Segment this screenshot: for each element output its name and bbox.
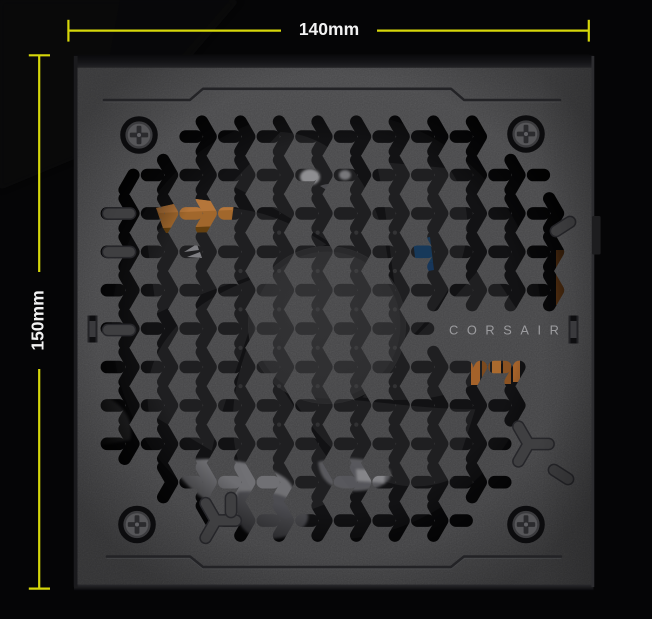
svg-text:CORSAIR: CORSAIR bbox=[449, 323, 568, 338]
svg-text:140mm: 140mm bbox=[299, 19, 359, 39]
svg-text:150mm: 150mm bbox=[28, 290, 48, 350]
